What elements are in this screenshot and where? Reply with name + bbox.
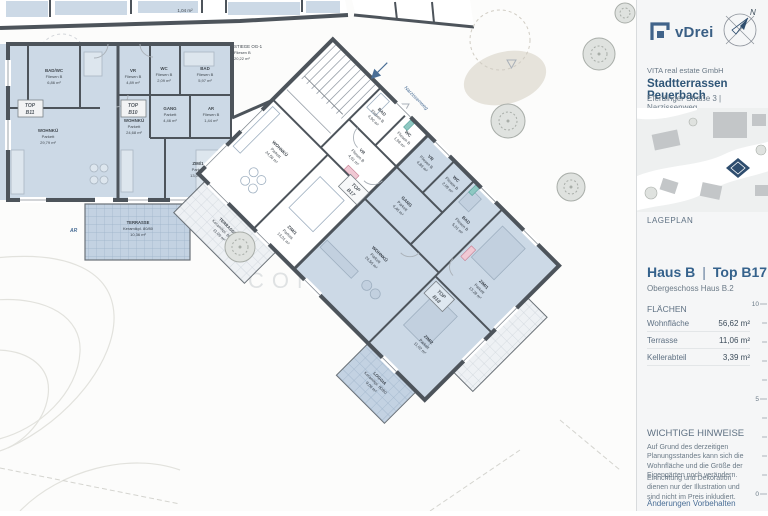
- stiege-label: STIEGE OG-1 Fliesen B 20,22 m²: [234, 44, 263, 61]
- svg-text:WC: WC: [160, 66, 168, 71]
- svg-text:GANG: GANG: [163, 106, 177, 111]
- notes-heading: WICHTIGE HINWEISE: [647, 428, 744, 439]
- svg-text:Fliesen B: Fliesen B: [234, 50, 251, 55]
- svg-text:VR: VR: [130, 68, 137, 73]
- parcel-lines: [0, 420, 620, 511]
- brochure-page: IMMO CONTRACT 1,04 m²: [0, 0, 768, 511]
- svg-text:20,22 m²: 20,22 m²: [234, 56, 250, 61]
- svg-text:Fliesen B: Fliesen B: [197, 72, 214, 77]
- svg-text:TERRASSE: TERRASSE: [127, 220, 150, 225]
- svg-text:5: 5: [755, 396, 759, 403]
- company-name: VITA real estate GmbH: [647, 66, 724, 75]
- compass-icon: N: [718, 6, 762, 50]
- room-area-fragment: 1,04 m²: [177, 8, 193, 13]
- ar-annotation: AR: [69, 228, 78, 234]
- svg-text:5,97 m²: 5,97 m²: [198, 78, 212, 83]
- svg-text:Parkett: Parkett: [164, 112, 178, 117]
- terrace-b11: TERRASSE Keramikpl. 80/80 10,36 m² AR: [69, 204, 190, 260]
- site-map: [637, 108, 768, 212]
- svg-text:6,86 m²: 6,86 m²: [47, 80, 61, 85]
- areas-table: Wohnfläche 56,62 m² Terrasse 11,06 m² Ke…: [647, 315, 750, 366]
- unit-title-top: Top B17: [713, 264, 767, 280]
- svg-text:0: 0: [755, 491, 759, 498]
- svg-text:WOHNKÜ: WOHNKÜ: [124, 118, 144, 123]
- svg-text:AR: AR: [208, 106, 214, 111]
- unit-title-haus: Haus B: [647, 264, 695, 280]
- svg-text:ZIM/1: ZIM/1: [192, 161, 204, 166]
- svg-text:Fliesen B: Fliesen B: [203, 112, 220, 117]
- svg-text:Keramikpl. 80/80: Keramikpl. 80/80: [123, 226, 154, 231]
- unit-title-separator: |: [702, 264, 706, 280]
- entrance-arrow: [369, 60, 390, 81]
- svg-text:1,44 m²: 1,44 m²: [204, 118, 218, 123]
- svg-text:2,09 m²: 2,09 m²: [157, 78, 171, 83]
- area-row-terrasse: Terrasse 11,06 m²: [647, 332, 750, 349]
- svg-text:4,89 m²: 4,89 m²: [126, 80, 140, 85]
- svg-text:Fliesen B: Fliesen B: [156, 72, 173, 77]
- svg-text:TOP: TOP: [25, 103, 36, 109]
- svg-text:WOHNKÜ: WOHNKÜ: [38, 128, 58, 133]
- svg-text:Parkett: Parkett: [128, 124, 142, 129]
- floorplan-panel: IMMO CONTRACT 1,04 m²: [0, 0, 636, 511]
- siteplan-label: LAGEPLAN: [647, 216, 693, 225]
- svg-text:Fliesen B: Fliesen B: [125, 74, 142, 79]
- svg-text:10: 10: [752, 301, 759, 308]
- svg-text:Fliesen B: Fliesen B: [46, 74, 63, 79]
- svg-text:4,46 m²: 4,46 m²: [163, 118, 177, 123]
- sidebar: vDrei N VITA real estate GmbH Stadtterra…: [636, 0, 768, 511]
- unit-tag-b10: TOP B10: [121, 100, 146, 117]
- svg-text:24,68 m²: 24,68 m²: [126, 130, 142, 135]
- floorplan-svg: IMMO CONTRACT 1,04 m²: [0, 0, 636, 511]
- svg-text:B10: B10: [128, 110, 137, 116]
- svg-text:10,36 m²: 10,36 m²: [130, 232, 146, 237]
- disclaimer: Änderungen Vorbehalten: [647, 499, 736, 508]
- svg-text:Parkett: Parkett: [42, 134, 56, 139]
- vdrei-logo-icon: [650, 22, 670, 42]
- svg-text:B11: B11: [26, 110, 35, 116]
- top-strip-building: 1,04 m²: [0, 0, 474, 30]
- svg-text:BAD/WC: BAD/WC: [45, 68, 64, 73]
- brand-logo-text: vDrei: [675, 24, 714, 41]
- unit-subtitle: Obergeschoss Haus B.2: [647, 284, 734, 293]
- area-row-kellerabteil: Kellerabteil 3,39 m²: [647, 349, 750, 366]
- areas-heading: FLÄCHEN: [647, 304, 687, 314]
- terrain-patch: [458, 42, 553, 114]
- unit-title: Haus B | Top B17: [647, 264, 767, 280]
- svg-text:N: N: [750, 8, 756, 17]
- brand: vDrei: [650, 22, 714, 42]
- unit-tag-b11: TOP B11: [18, 100, 43, 117]
- scale-ruler: 10 5 0: [752, 296, 768, 511]
- svg-text:BAD: BAD: [200, 66, 210, 71]
- svg-text:STIEGE OG-1: STIEGE OG-1: [234, 44, 263, 49]
- area-row-wohnflaeche: Wohnfläche 56,62 m²: [647, 315, 750, 332]
- svg-text:29,79 m²: 29,79 m²: [40, 140, 56, 145]
- svg-text:TOP: TOP: [128, 103, 139, 109]
